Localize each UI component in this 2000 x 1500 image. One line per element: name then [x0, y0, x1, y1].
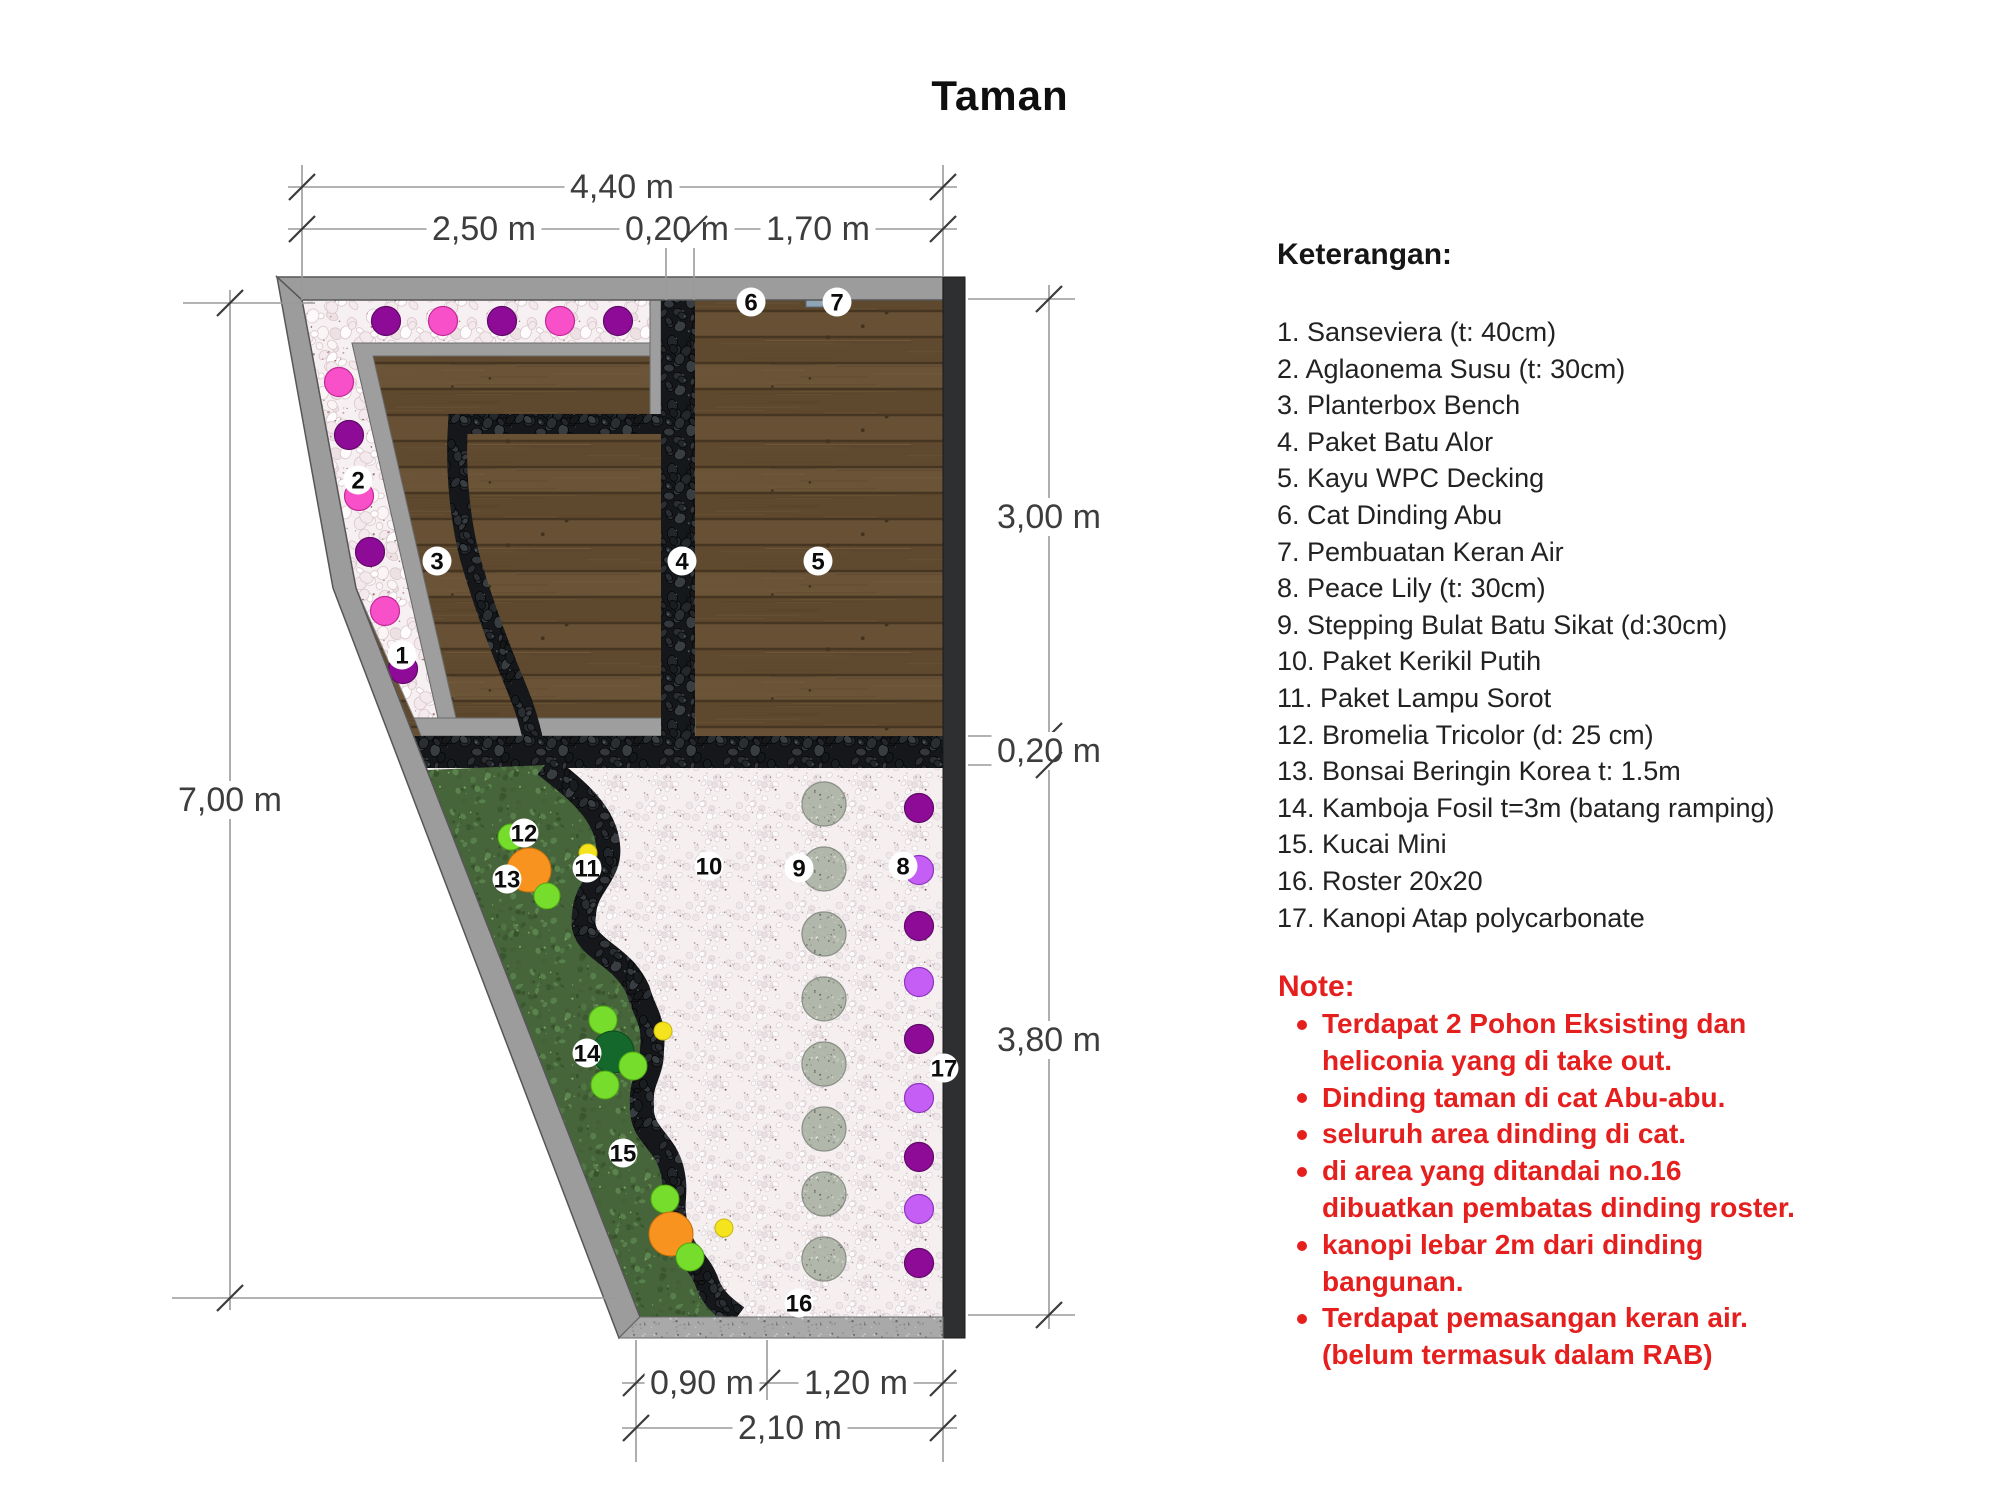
svg-text:1,20 m: 1,20 m	[804, 1364, 908, 1402]
svg-text:16: 16	[786, 1291, 813, 1318]
svg-text:1: 1	[395, 643, 408, 670]
svg-text:13: 13	[494, 867, 521, 894]
svg-text:11: 11	[574, 856, 599, 883]
svg-text:2,50 m: 2,50 m	[432, 210, 536, 248]
svg-text:3,00 m: 3,00 m	[997, 498, 1101, 536]
svg-text:1,70 m: 1,70 m	[766, 210, 870, 248]
svg-text:4: 4	[675, 549, 689, 576]
svg-text:15: 15	[610, 1141, 637, 1168]
svg-text:14: 14	[574, 1041, 601, 1068]
svg-text:8: 8	[896, 854, 909, 881]
svg-text:3,80 m: 3,80 m	[997, 1021, 1101, 1059]
svg-text:12: 12	[511, 821, 538, 848]
svg-text:6: 6	[744, 290, 757, 317]
svg-text:5: 5	[811, 549, 824, 576]
svg-text:0,90 m: 0,90 m	[650, 1364, 754, 1402]
svg-text:17: 17	[931, 1056, 958, 1083]
svg-text:3: 3	[430, 549, 443, 576]
svg-text:9: 9	[792, 856, 805, 883]
svg-text:7,00 m: 7,00 m	[178, 781, 282, 819]
svg-text:2,10 m: 2,10 m	[738, 1409, 842, 1447]
svg-text:7: 7	[830, 290, 843, 317]
svg-text:4,40 m: 4,40 m	[570, 168, 674, 206]
svg-text:10: 10	[696, 854, 723, 881]
svg-text:2: 2	[351, 468, 364, 495]
svg-text:0,20 m: 0,20 m	[625, 210, 729, 248]
